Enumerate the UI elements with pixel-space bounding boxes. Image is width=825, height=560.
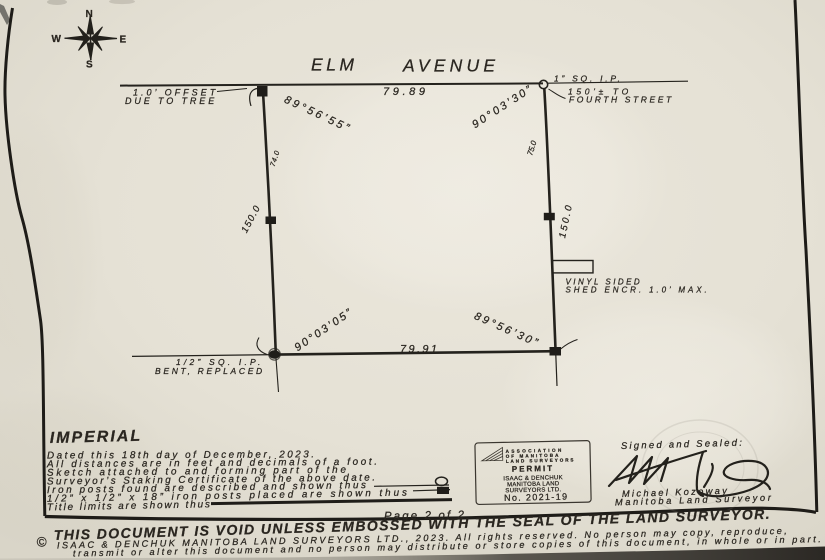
svg-text:ELM: ELM (311, 55, 354, 75)
svg-text:N: N (86, 9, 93, 20)
svg-text:1” SQ. I.P.: 1” SQ. I.P. (554, 74, 620, 84)
svg-text:©: © (37, 535, 47, 550)
svg-text:IMPERIAL: IMPERIAL (50, 428, 143, 447)
svg-text:E: E (120, 35, 127, 46)
svg-text:PERMIT: PERMIT (512, 464, 554, 474)
svg-text:79.91: 79.91 (400, 344, 437, 356)
svg-text:BENT, REPLACED: BENT, REPLACED (155, 366, 263, 376)
svg-text:DUE TO TREE: DUE TO TREE (125, 96, 215, 106)
svg-text:No. 2021-19: No. 2021-19 (504, 492, 567, 503)
svg-text:W: W (52, 34, 62, 45)
svg-text:S: S (86, 60, 93, 71)
